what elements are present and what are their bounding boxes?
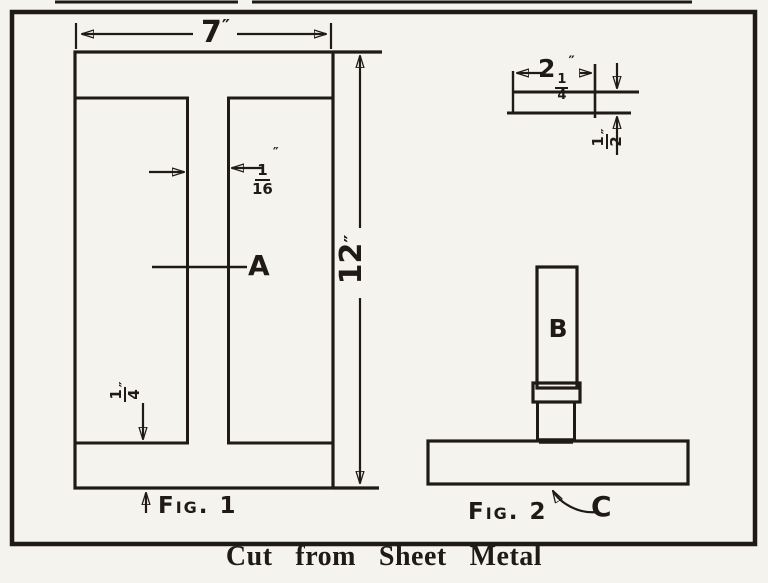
drawing-title: Cut from Sheet Metal	[0, 543, 768, 571]
fig1-right-cutout	[229, 98, 333, 443]
flange-thickness-label: 14″	[107, 364, 143, 420]
sheet-metal-drawing: 7″ 12″ 116″ 14″ A Fig. 1 214″ 12″ B Fig.…	[0, 0, 768, 583]
fig2-base	[428, 441, 688, 484]
web-thickness-label: 116″	[252, 147, 278, 196]
fig2-collar	[533, 383, 580, 402]
drawing-linework	[0, 0, 768, 583]
fig1-height-label: 12″	[330, 230, 374, 290]
fig2-bar-point-label: B	[544, 316, 572, 341]
fig1-web-point-label: A	[248, 252, 270, 280]
strip-length-label: 214″	[538, 55, 574, 103]
fig2-outline	[428, 267, 688, 484]
web-thickness-arrows	[149, 168, 263, 172]
strip-thickness-label: 12″	[592, 117, 622, 161]
fig1-caption: Fig. 1	[158, 495, 238, 518]
fig2-caption: Fig. 2	[468, 501, 548, 524]
page-border	[12, 2, 755, 544]
fig2-base-point-label: C	[591, 493, 612, 521]
fig1-width-label: 7″	[192, 18, 238, 48]
